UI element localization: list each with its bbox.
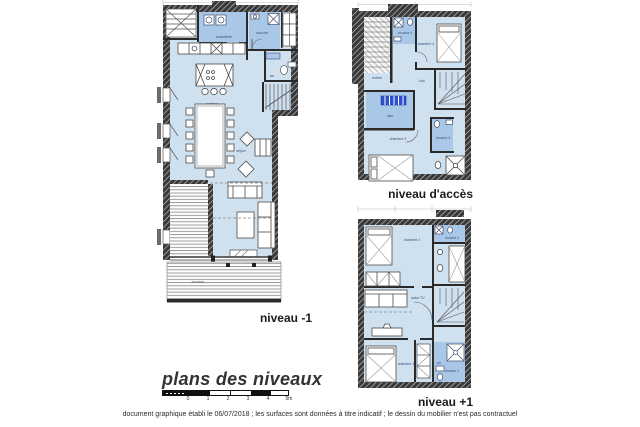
sheet-title: plans des niveaux — [162, 370, 362, 388]
scale-segment — [209, 391, 230, 395]
plan-niveau-plus-1: chambre 2 douche 2 salon TV — [358, 206, 471, 388]
room-label-terrace: terrasse — [192, 280, 205, 284]
scale-tick-label: 3 — [247, 396, 250, 402]
room-label-bedroom1: chambre 1 — [398, 362, 415, 366]
floor-plans-drawing: buanderie douche wc — [0, 0, 640, 427]
room-label-tv: salon TV — [411, 296, 425, 300]
room-label-wc-plus1: wc — [437, 361, 442, 365]
room-label-hall: hall — [419, 79, 425, 83]
floor-plans-sheet: buanderie douche wc — [0, 0, 640, 427]
room-label-bedroom2: chambre 2 — [404, 238, 421, 242]
caption-niveau-acces: niveau d'accès — [360, 187, 473, 201]
scale-labels: 0 1 2 3 4 5m — [162, 396, 302, 404]
disclaimer-text: document graphique établi le 06/07/2018 … — [0, 411, 640, 418]
room-label-shower1: douche 1 — [445, 369, 459, 373]
scale-segment — [251, 391, 271, 395]
scale-tick-label: 4 — [267, 396, 270, 402]
caption-niveau-plus-1: niveau +1 — [360, 395, 473, 409]
room-label-wc: wc — [270, 74, 275, 78]
room-label-bedroom4: chambre 4 — [418, 42, 435, 46]
room-label-bedroom3: chambre 3 — [390, 137, 407, 141]
scale-segment — [163, 391, 189, 395]
room-label-ski: skis — [387, 114, 393, 118]
scale-segment — [230, 391, 251, 395]
room-label-shower4: douche 4 — [398, 31, 412, 35]
title-block: plans des niveaux 0 1 2 3 4 5m — [162, 370, 362, 404]
plan-niveau-minus-1: buanderie douche wc — [157, 0, 298, 303]
plan-niveau-acces: entrée douche 4 chambre 4 hall — [352, 2, 471, 181]
caption-niveau-minus-1: niveau -1 — [200, 311, 312, 325]
room-label-entry: entrée — [372, 76, 382, 80]
room-label-shower: douche — [256, 31, 268, 35]
scale-segment — [189, 391, 209, 395]
scale-tick-label: 0 — [187, 396, 190, 402]
room-label-shower3: douche 3 — [436, 136, 450, 140]
scale-tick-label: 2 — [227, 396, 230, 402]
scale-tick-label: 5m — [286, 396, 293, 402]
room-label-laundry: buanderie — [216, 35, 232, 39]
room-label-living: séjour — [236, 149, 246, 153]
scale-tick-label: 1 — [207, 396, 210, 402]
room-label-shower2: douche 2 — [445, 236, 459, 240]
